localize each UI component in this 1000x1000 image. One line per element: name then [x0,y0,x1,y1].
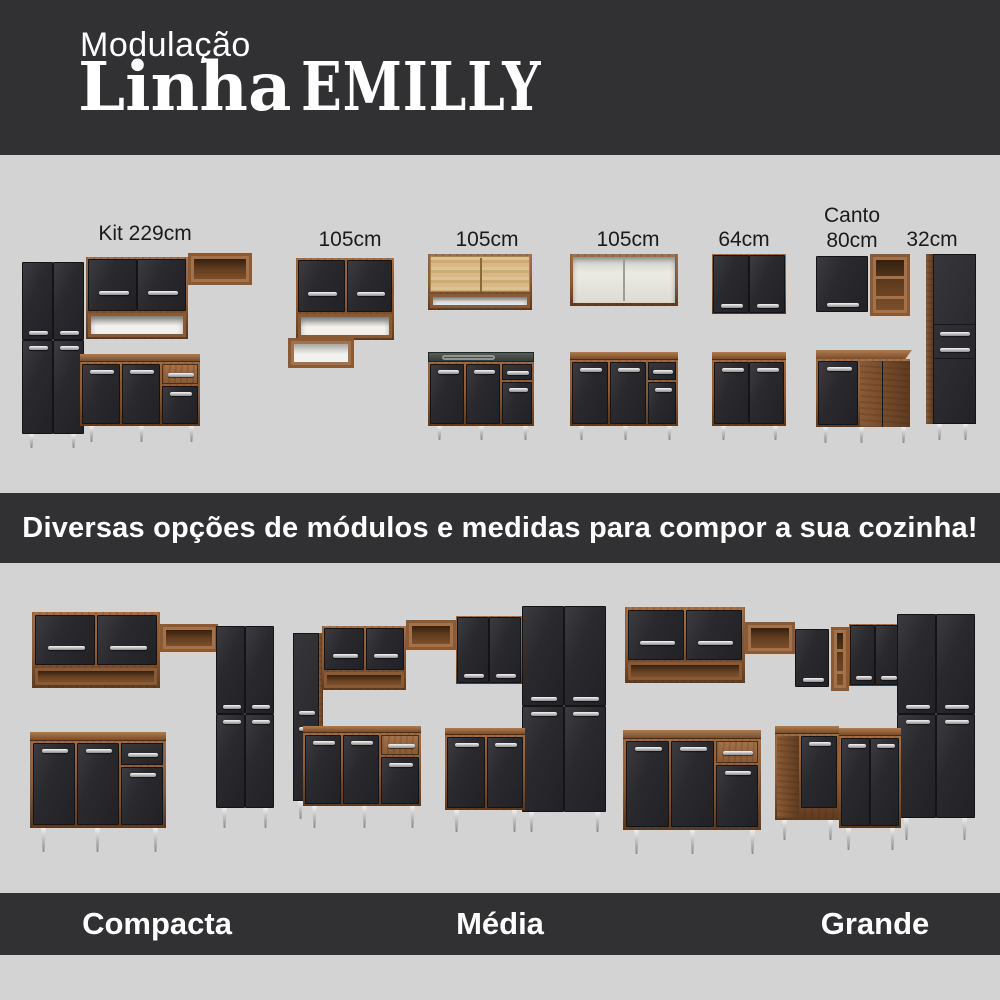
cabinet-door [850,625,875,685]
door-handle [945,705,969,709]
countertop [839,728,901,736]
countertop [775,726,839,734]
kitchen-grande [0,0,1000,1000]
drawer [716,741,758,763]
door-handle [945,720,969,724]
cabinet-door [628,610,684,660]
cabinet-door [626,741,669,827]
cabinet-door [801,736,837,808]
grande-top-shelf [745,622,795,654]
cabinet-door [897,614,936,714]
cabinet-door [795,629,829,687]
open-shelf [745,622,795,654]
cabinet-door [897,714,936,818]
door-handle [725,771,751,775]
grande-corner-wall-cabinet [795,627,849,691]
door-handle [680,747,707,751]
cabinet-door [936,714,975,818]
grande-corner-base-cabinet [775,726,839,840]
kitchen-size-label-media: Média [456,906,544,942]
door-handle [635,747,662,751]
shelf-interior [837,633,843,685]
grande-tall-cabinet [897,614,975,840]
cabinet-leg [903,818,910,840]
door-handle [848,744,866,748]
grande-base-cabinet-1 [623,730,761,856]
cabinet-leg [749,830,756,854]
cabinet-door [936,614,975,714]
cabinet-leg [961,818,968,840]
cabinet-leg [845,828,852,850]
door-handle [881,676,897,680]
door-handle [809,742,831,746]
cabinet-leg [889,828,896,850]
wood-panel [777,736,799,818]
door-handle [803,678,824,682]
footer-band: Compacta Média Grande [0,893,1000,955]
open-shelf [831,627,849,691]
door-handle [906,705,930,709]
cabinet-leg [689,830,696,854]
cabinet-door [870,738,899,826]
door-handle [906,720,930,724]
drawer-handle [723,751,753,755]
shelf [836,649,844,652]
open-niche [628,662,742,680]
cabinet-door [671,741,714,827]
shelf-interior [751,628,789,648]
door-handle [698,641,733,645]
cabinet-door [841,738,870,826]
cabinet-leg [781,820,788,840]
countertop [623,730,761,739]
door-handle [640,641,675,645]
shelf [836,671,844,674]
cabinet-door [716,765,758,827]
cabinet-door [686,610,742,660]
door-handle [856,676,872,680]
grande-wall-cabinet [625,607,745,683]
poster: Modulação LinhaEMILLY Kit 229cm 105cm 10… [0,0,1000,1000]
cabinet-leg [633,830,640,854]
door-handle [877,744,895,748]
cabinet-leg [827,820,834,840]
kitchen-size-label-grande: Grande [821,906,930,942]
kitchen-size-label-compacta: Compacta [82,906,232,942]
grande-base-cabinet-2 [839,728,901,850]
grande-wall-cabinet-right [849,624,901,686]
